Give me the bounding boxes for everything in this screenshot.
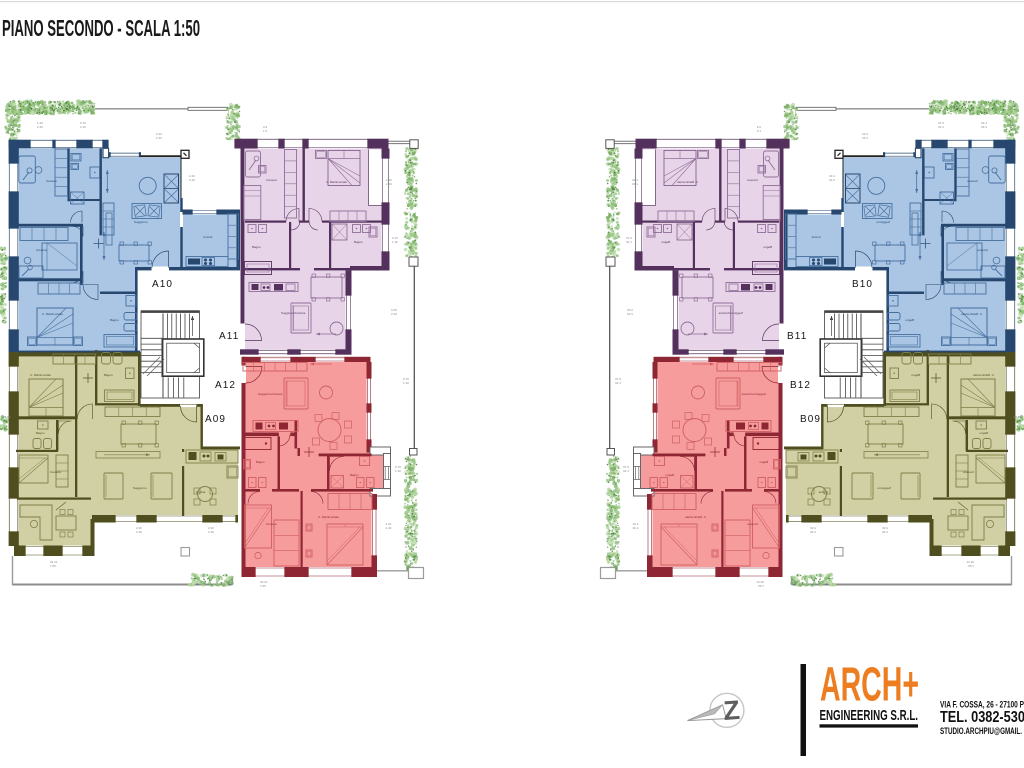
svg-text:ENGINEERING S.R.L.: ENGINEERING S.R.L. bbox=[820, 707, 919, 724]
svg-text:Z: Z bbox=[722, 695, 741, 726]
svg-text:B09: B09 bbox=[800, 414, 821, 425]
svg-text:B11: B11 bbox=[787, 331, 807, 342]
svg-text:ARCH+: ARCH+ bbox=[820, 659, 919, 712]
svg-text:A12: A12 bbox=[215, 380, 236, 391]
svg-text:B12: B12 bbox=[790, 380, 811, 391]
svg-text:TEL. 0382-5304: TEL. 0382-5304 bbox=[940, 709, 1024, 726]
svg-text:STUDIO.ARCHPIU@GMAIL.: STUDIO.ARCHPIU@GMAIL. bbox=[940, 726, 1022, 736]
svg-text:A09: A09 bbox=[205, 414, 226, 425]
svg-text:PIANO SECONDO - SCALA 1:50: PIANO SECONDO - SCALA 1:50 bbox=[2, 15, 200, 41]
svg-text:A10: A10 bbox=[152, 279, 173, 290]
svg-text:A11: A11 bbox=[219, 331, 239, 342]
svg-text:B10: B10 bbox=[852, 279, 873, 290]
